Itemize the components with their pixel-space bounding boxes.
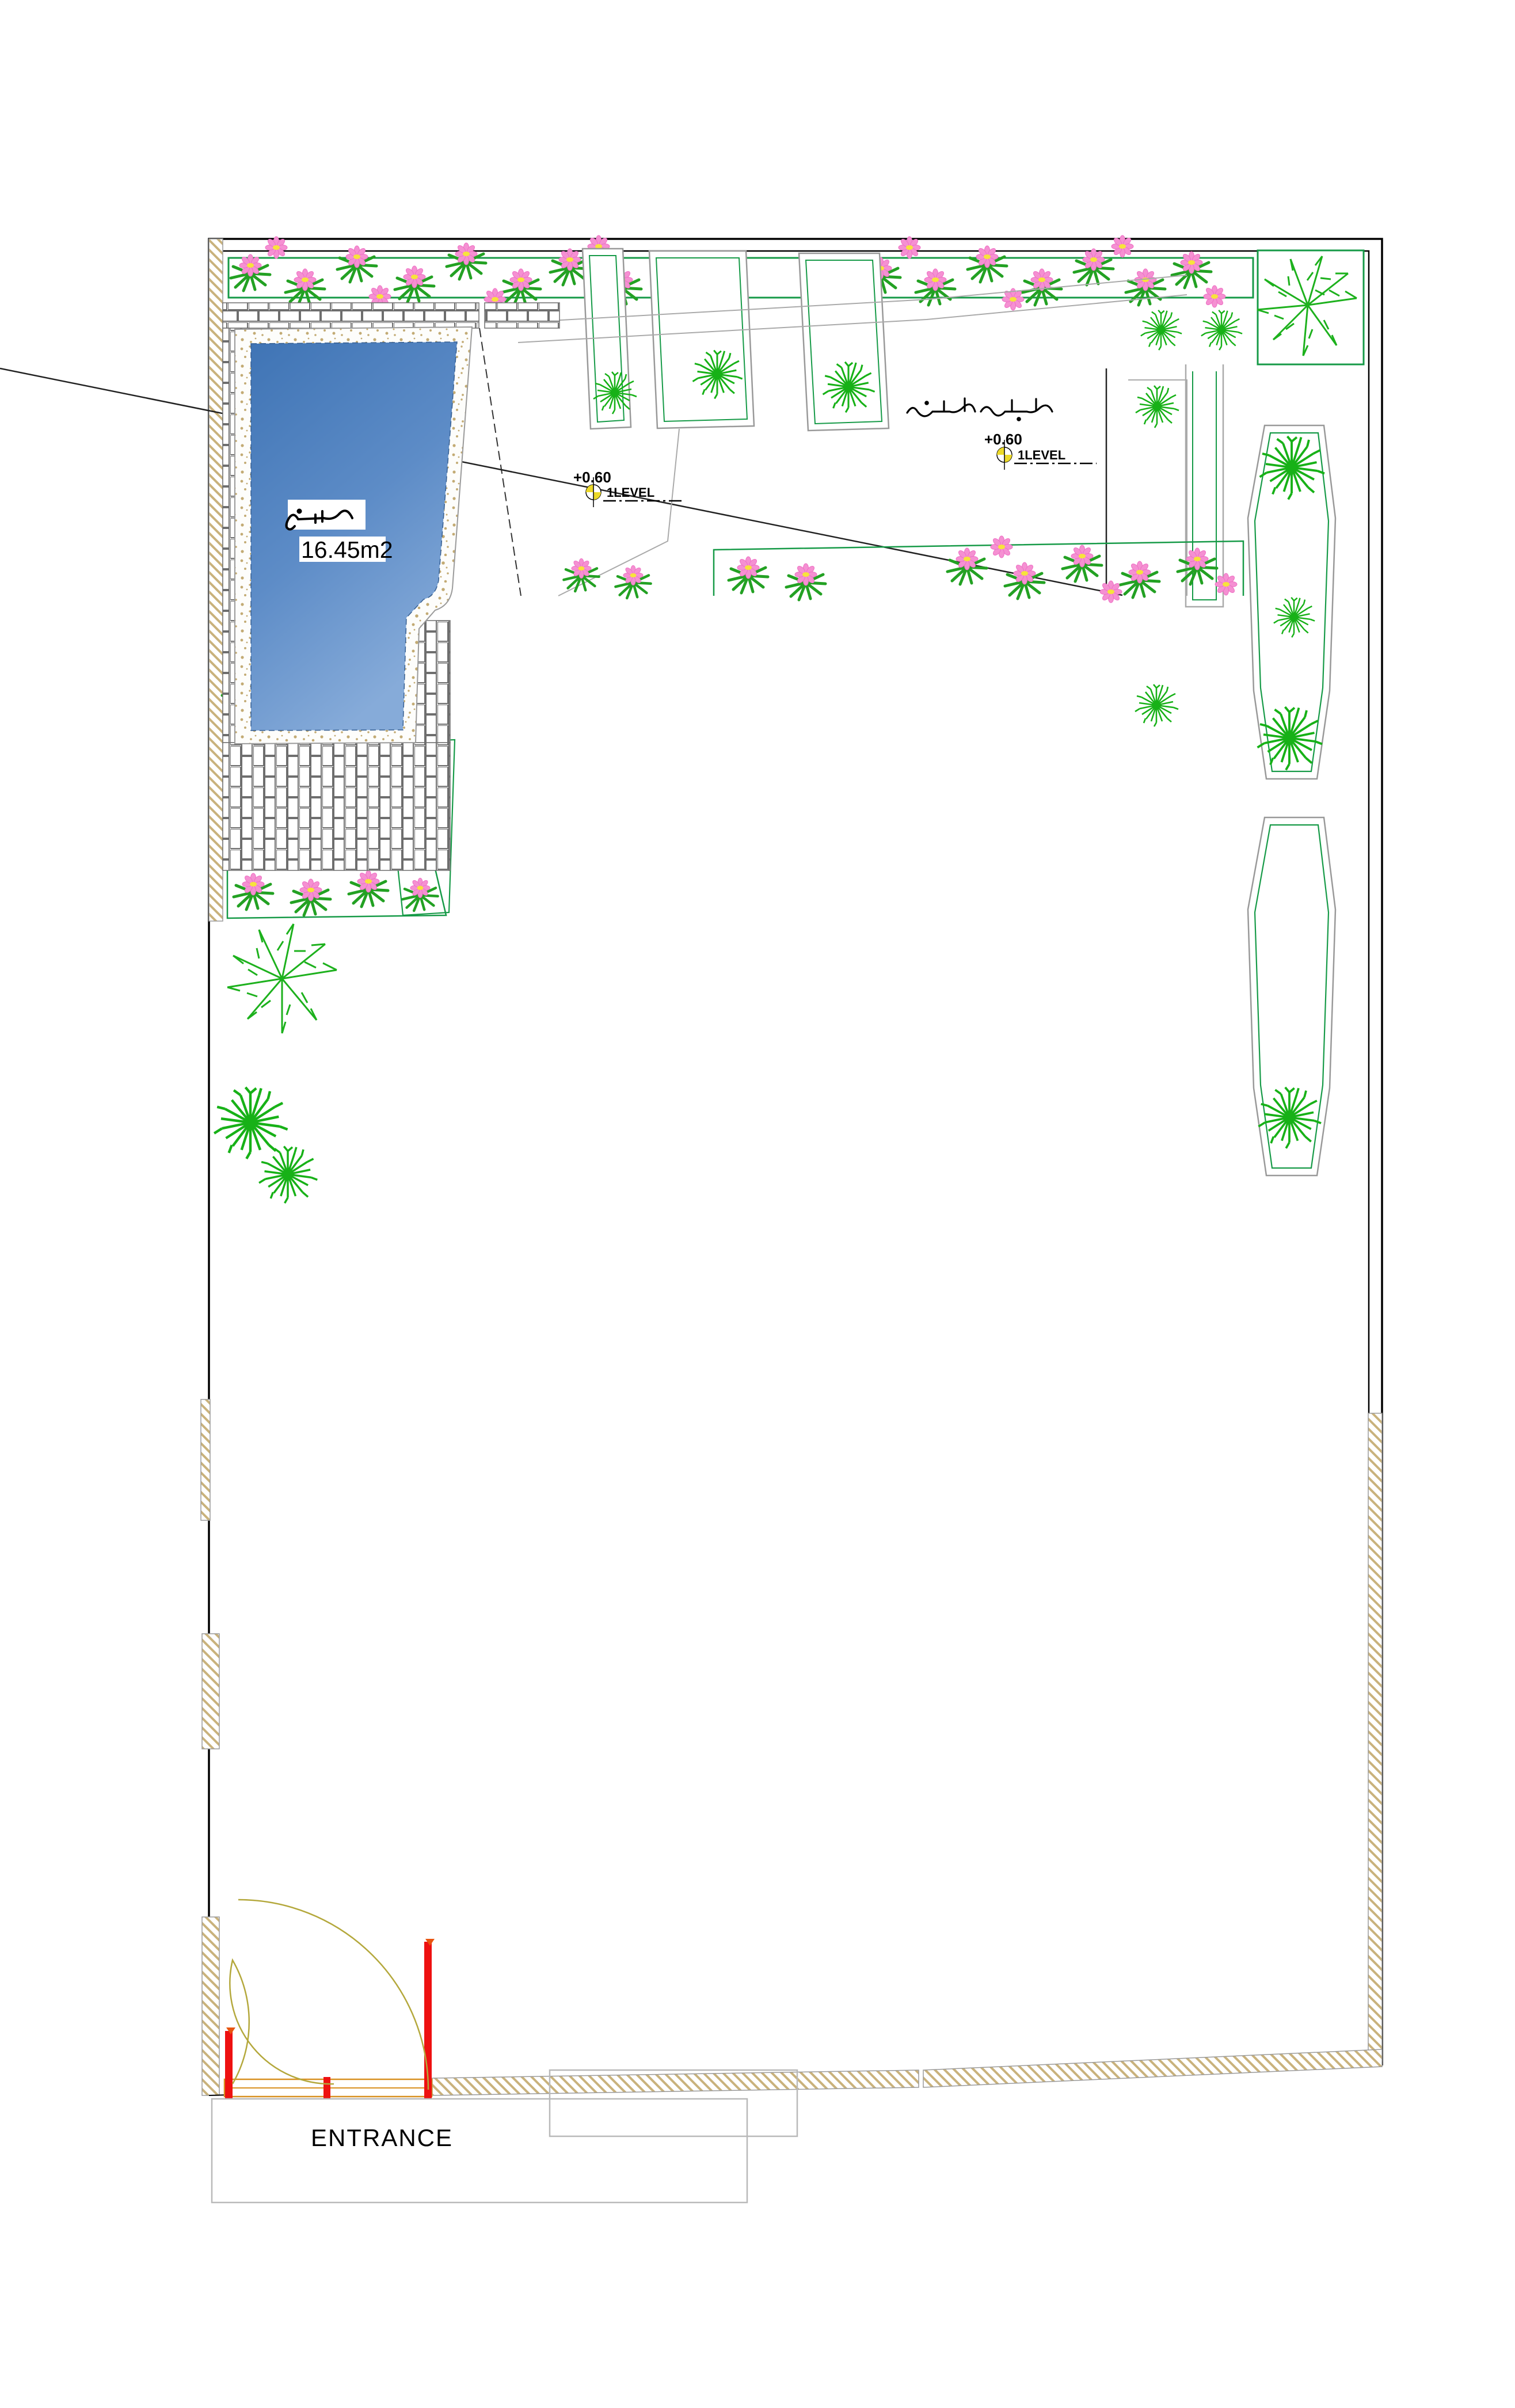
svg-text:1LEVEL: 1LEVEL	[607, 485, 654, 500]
svg-text:+0.60: +0.60	[984, 431, 1022, 448]
svg-text:16.45m2: 16.45m2	[301, 537, 393, 563]
svg-text:1LEVEL: 1LEVEL	[1018, 448, 1065, 462]
svg-text:ENTRANCE: ENTRANCE	[311, 2124, 453, 2151]
svg-text:+0.60: +0.60	[573, 469, 611, 486]
